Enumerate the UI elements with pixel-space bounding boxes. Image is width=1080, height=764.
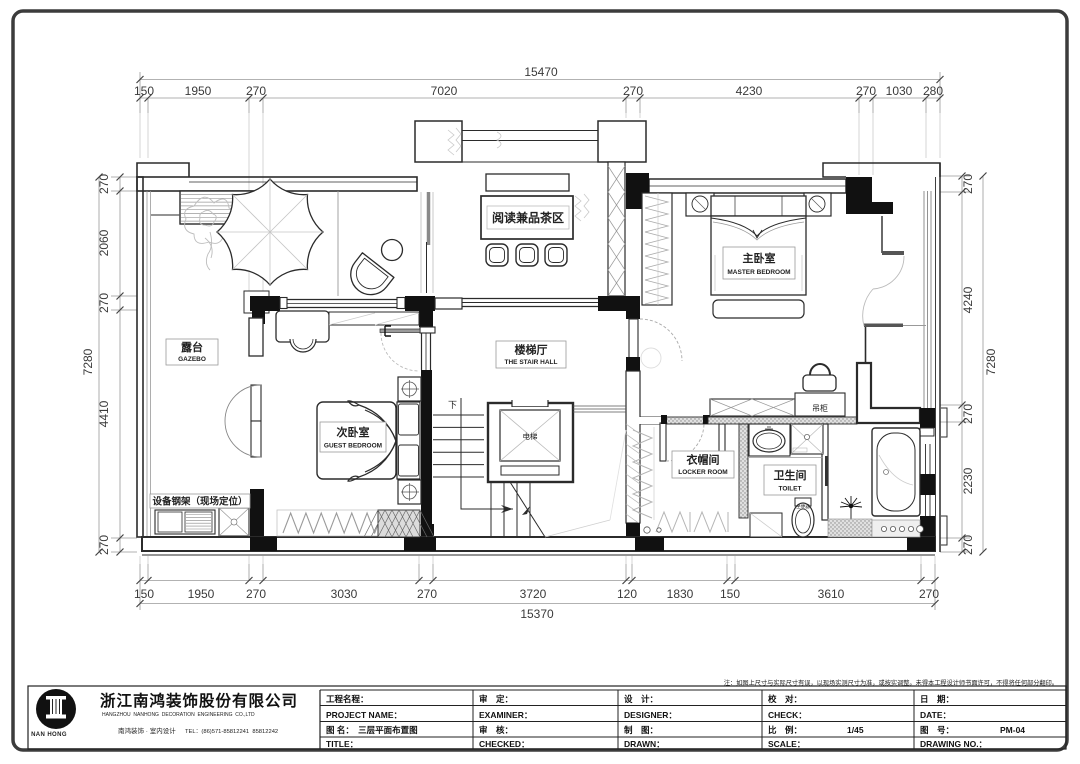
svg-text:1830: 1830	[667, 587, 694, 601]
svg-text:1/45: 1/45	[847, 725, 864, 735]
svg-text:GAZEBO: GAZEBO	[178, 356, 206, 363]
svg-text:3030: 3030	[331, 587, 358, 601]
svg-text:7020: 7020	[431, 84, 458, 98]
svg-text:270: 270	[623, 84, 643, 98]
svg-text:比 例：: 比 例：	[768, 725, 802, 735]
svg-text:150: 150	[720, 587, 740, 601]
svg-text:3720: 3720	[520, 587, 547, 601]
svg-text:设备钢架（现场定位）: 设备钢架（现场定位）	[152, 496, 247, 508]
svg-text:270: 270	[246, 587, 266, 601]
svg-text:1950: 1950	[185, 84, 212, 98]
svg-text:阅读兼品茶区: 阅读兼品茶区	[492, 210, 564, 225]
svg-text:SCALE：: SCALE：	[768, 739, 805, 749]
svg-text:DRAWN：: DRAWN：	[624, 739, 665, 749]
svg-text:270: 270	[97, 174, 111, 194]
svg-text:衣帽间: 衣帽间	[687, 453, 720, 467]
svg-text:120: 120	[617, 587, 637, 601]
svg-text:露台: 露台	[181, 340, 203, 354]
svg-text:电梯: 电梯	[523, 431, 538, 441]
svg-text:EXAMINER：: EXAMINER：	[479, 710, 532, 720]
svg-text:270: 270	[97, 535, 111, 555]
svg-text:280: 280	[923, 84, 943, 98]
svg-text:吊柜: 吊柜	[812, 403, 828, 413]
svg-text:工程名程：: 工程名程：	[326, 694, 369, 704]
svg-text:DRAWING NO.：: DRAWING NO.：	[920, 739, 987, 749]
svg-text:主卧室: 主卧室	[743, 251, 776, 265]
svg-text:MASTER BEDROOM: MASTER BEDROOM	[727, 269, 790, 276]
svg-text:卫生间: 卫生间	[774, 468, 807, 482]
svg-text:南鸿装饰 · 室内设计: 南鸿装饰 · 室内设计	[118, 726, 176, 735]
svg-text:270: 270	[246, 84, 266, 98]
svg-text:PM-04: PM-04	[1000, 725, 1025, 735]
svg-text:7280: 7280	[81, 348, 95, 375]
svg-text:LOCKER ROOM: LOCKER ROOM	[678, 469, 727, 476]
svg-text:270: 270	[919, 587, 939, 601]
svg-text:TOILET: TOILET	[779, 486, 802, 493]
svg-text:4240: 4240	[961, 286, 975, 313]
svg-text:2230: 2230	[961, 467, 975, 494]
svg-text:GUEST BEDROOM: GUEST BEDROOM	[324, 443, 382, 450]
svg-text:7280: 7280	[984, 348, 998, 375]
svg-text:270: 270	[97, 293, 111, 313]
svg-text:270: 270	[961, 404, 975, 424]
svg-text:日 期：: 日 期：	[920, 694, 954, 704]
svg-text:2060: 2060	[97, 229, 111, 256]
svg-text:150: 150	[134, 84, 154, 98]
svg-text:4410: 4410	[97, 400, 111, 427]
svg-text:270: 270	[417, 587, 437, 601]
svg-text:CHECK：: CHECK：	[768, 710, 807, 720]
svg-text:CHECKED：: CHECKED：	[479, 739, 530, 749]
svg-text:NAN HONG: NAN HONG	[31, 732, 67, 738]
svg-text:次卧室: 次卧室	[337, 425, 370, 439]
svg-text:15370: 15370	[520, 607, 554, 621]
svg-text:3610: 3610	[818, 587, 845, 601]
svg-text:楼梯厅: 楼梯厅	[515, 343, 548, 357]
svg-text:15470: 15470	[524, 65, 558, 79]
svg-text:270: 270	[961, 535, 975, 555]
svg-text:1030: 1030	[886, 84, 913, 98]
svg-text:DATE：: DATE：	[920, 710, 951, 720]
svg-text:坐便器: 坐便器	[796, 503, 810, 510]
svg-text:150: 150	[134, 587, 154, 601]
svg-text:HANGZHOU NANHONG DECORATION: HANGZHOU NANHONG DECORATION ENGINEERING …	[102, 712, 255, 718]
svg-text:设 计：: 设 计：	[624, 694, 658, 704]
svg-text:下: 下	[448, 400, 457, 410]
svg-text:270: 270	[961, 174, 975, 194]
svg-text:PROJECT NAME：: PROJECT NAME：	[326, 710, 402, 720]
svg-text:THE STAIR HALL: THE STAIR HALL	[505, 359, 558, 366]
svg-text:TEL：(86)571-85812241 85812242: TEL：(86)571-85812241 85812242	[185, 729, 278, 735]
svg-text:图 名： 三层平面布置图: 图 名： 三层平面布置图	[326, 725, 418, 735]
svg-text:审 定：: 审 定：	[479, 694, 513, 704]
svg-text:校 对：: 校 对：	[768, 694, 802, 704]
svg-text:制 图：: 制 图：	[624, 725, 658, 735]
svg-text:DESIGNER：: DESIGNER：	[624, 710, 677, 720]
svg-text:审 核：: 审 核：	[479, 725, 513, 735]
svg-text:图 号：: 图 号：	[920, 725, 954, 735]
svg-text:270: 270	[856, 84, 876, 98]
svg-text:浙江南鸿装饰股份有限公司: 浙江南鸿装饰股份有限公司	[100, 691, 298, 710]
svg-text:4230: 4230	[736, 84, 763, 98]
svg-text:1950: 1950	[188, 587, 215, 601]
svg-text:TITLE：: TITLE：	[326, 739, 358, 749]
